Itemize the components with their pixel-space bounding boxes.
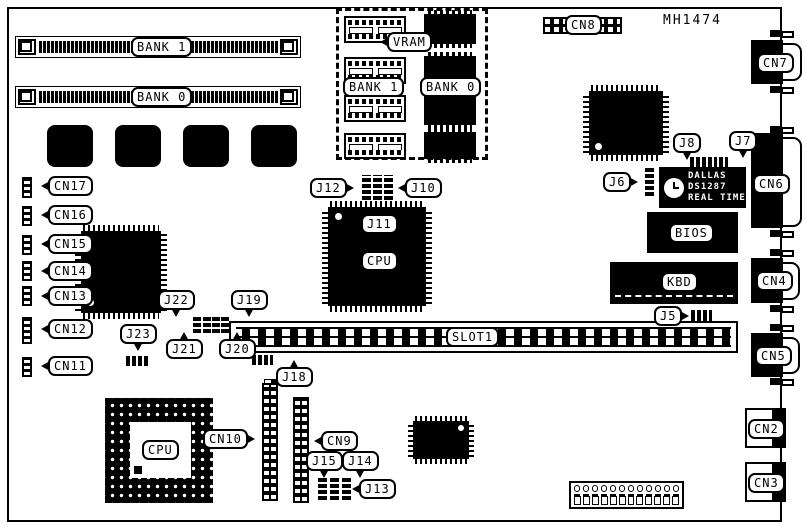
cn4-label: CN4 [756, 271, 793, 291]
terminal-slots [574, 496, 679, 505]
cn2-label: CN2 [748, 419, 785, 439]
socket-hole [378, 106, 402, 113]
j5-label: J5 [654, 306, 682, 326]
chip-pins [83, 313, 159, 319]
edge-tab [781, 231, 794, 238]
j10-label: J10 [405, 178, 442, 198]
pin-cells [271, 385, 276, 499]
chip-pins [428, 44, 472, 48]
simm-latch [18, 39, 36, 55]
j18-jumper [252, 355, 273, 365]
edge-tab [781, 127, 794, 134]
j20-jumper [212, 315, 220, 333]
cn16-connector [22, 206, 32, 226]
socket-pins [348, 99, 402, 104]
socket-hole [349, 68, 373, 75]
vram-bank0-label: BANK 0 [420, 77, 481, 97]
socket-pins [348, 137, 402, 142]
rtc-line2: DS1287 [688, 182, 746, 193]
j19-jumper [221, 315, 229, 333]
cn10-label: CN10 [203, 429, 248, 449]
socket-pins [348, 61, 402, 66]
j23-jumper [126, 356, 148, 366]
j19-label: J19 [231, 290, 268, 310]
pin-cells [24, 179, 30, 196]
cn9-connector [293, 397, 309, 503]
memory-chip [251, 125, 297, 167]
vram-socket [344, 133, 406, 159]
j18-label: J18 [276, 367, 313, 387]
edge-mount [770, 249, 781, 256]
cn9-label: CN9 [321, 431, 358, 451]
j20-label: J20 [219, 339, 256, 359]
cn11-label: CN11 [48, 356, 93, 376]
chip-pins [663, 93, 669, 153]
bank1-label: BANK 1 [131, 37, 192, 57]
socket-hole [349, 106, 373, 113]
chip-pins [428, 10, 472, 14]
chip-marking [615, 295, 733, 297]
edge-tab [781, 325, 794, 332]
edge-tab [781, 250, 794, 257]
j12-jumper [362, 175, 371, 200]
j11-label: J11 [361, 214, 398, 234]
bios-label: BIOS [669, 223, 714, 243]
edge-mount [770, 126, 781, 133]
j6-jumper [645, 168, 654, 196]
cn12-connector [22, 317, 32, 344]
simm-latch [280, 89, 298, 105]
vram-chip [424, 95, 476, 125]
edge-tab [781, 379, 794, 386]
pin-cells [24, 288, 30, 304]
j15-label: J15 [306, 451, 343, 471]
cn15-label: CN15 [48, 234, 93, 254]
chip-pins [428, 159, 472, 163]
cn14-label: CN14 [48, 261, 93, 281]
j23-label: J23 [120, 324, 157, 344]
pin1-dot [335, 213, 342, 220]
vga-controller-chip [583, 85, 669, 161]
socket-pins [348, 113, 402, 118]
pin-cells [295, 399, 300, 501]
clock-icon [664, 178, 684, 198]
j7-jumper [719, 157, 728, 167]
pin1-dot [595, 143, 602, 150]
chip-pins [428, 128, 472, 132]
cn14-connector [22, 261, 32, 281]
rtc-text: DALLAS DS1287 REAL TIME [688, 171, 746, 204]
j8-label: J8 [673, 133, 701, 153]
edge-mount [770, 305, 781, 312]
chip-pins [428, 52, 472, 56]
pin1-dot [458, 425, 464, 431]
cn15-connector [22, 235, 32, 255]
cn10-connector [262, 383, 278, 501]
support-chip [408, 416, 474, 464]
pin-cells [24, 208, 30, 224]
cpu-label: CPU [361, 251, 398, 271]
rtc-line3: REAL TIME [688, 193, 746, 204]
j22-jumper [193, 315, 201, 333]
rtc-line1: DALLAS [688, 171, 746, 182]
j10-jumper [384, 175, 393, 200]
chip-pins [330, 306, 424, 312]
terminal-block-connector [569, 481, 684, 509]
socket-hole [349, 27, 373, 34]
motherboard-diagram: MH1474 BANK 1 BANK 0 [0, 0, 806, 527]
cn17-label: CN17 [48, 176, 93, 196]
vram-chip [424, 132, 476, 159]
edge-tab [781, 31, 794, 38]
j7-label: J7 [729, 131, 757, 151]
edge-mount [770, 30, 781, 37]
j21-label: J21 [166, 339, 203, 359]
bank0-label: BANK 0 [131, 87, 192, 107]
j6-label: J6 [603, 172, 631, 192]
j14-label: J14 [342, 451, 379, 471]
pin-cells [302, 399, 307, 501]
terminal-screws [574, 485, 679, 492]
cn7-label: CN7 [757, 53, 794, 73]
edge-mount [770, 86, 781, 93]
cpu-socket-label: CPU [142, 440, 179, 460]
j12-label: J12 [310, 178, 347, 198]
kbd-label: KBD [661, 272, 698, 292]
cn16-label: CN16 [48, 205, 93, 225]
simm-latch [280, 39, 298, 55]
pin-cells [24, 359, 30, 375]
memory-chip [47, 125, 93, 167]
vram-socket [344, 95, 406, 122]
vram-bank1-label: BANK 1 [343, 77, 404, 97]
cn11-connector [22, 357, 32, 377]
cn8-label: CN8 [565, 15, 602, 35]
edge-mount [770, 378, 781, 385]
slot1-label: SLOT1 [446, 327, 499, 347]
cn13-connector [22, 286, 32, 306]
socket-pins [348, 150, 402, 155]
chip-pins [426, 209, 432, 304]
j11-jumper [373, 175, 382, 200]
chip-pins [591, 155, 661, 161]
cn12-label: CN12 [48, 319, 93, 339]
pin-cells [24, 319, 30, 342]
vram-label: VRAM [387, 32, 432, 52]
edge-mount [770, 230, 781, 237]
pin-cells [24, 237, 30, 253]
pin-cells [24, 263, 30, 279]
cn6-label: CN6 [753, 174, 790, 194]
j8-jumper [690, 157, 717, 167]
j22-label: J22 [158, 290, 195, 310]
cn5-label: CN5 [755, 346, 792, 366]
rtc-chip: DALLAS DS1287 REAL TIME [659, 167, 746, 208]
socket-pins [348, 20, 402, 25]
j21-jumper [203, 315, 211, 333]
edge-tab [781, 306, 794, 313]
simm-latch [18, 89, 36, 105]
part-number: MH1474 [663, 13, 722, 28]
pin1-mark [134, 466, 142, 474]
edge-tab [781, 87, 794, 94]
cn3-label: CN3 [748, 473, 785, 493]
j14-jumper [330, 477, 339, 500]
socket-hole [378, 68, 402, 75]
edge-mount [770, 324, 781, 331]
memory-chip [115, 125, 161, 167]
cn13-label: CN13 [48, 286, 93, 306]
cn17-connector [22, 177, 32, 198]
j13-label: J13 [359, 479, 396, 499]
memory-chip [183, 125, 229, 167]
pin-cells [264, 385, 269, 499]
